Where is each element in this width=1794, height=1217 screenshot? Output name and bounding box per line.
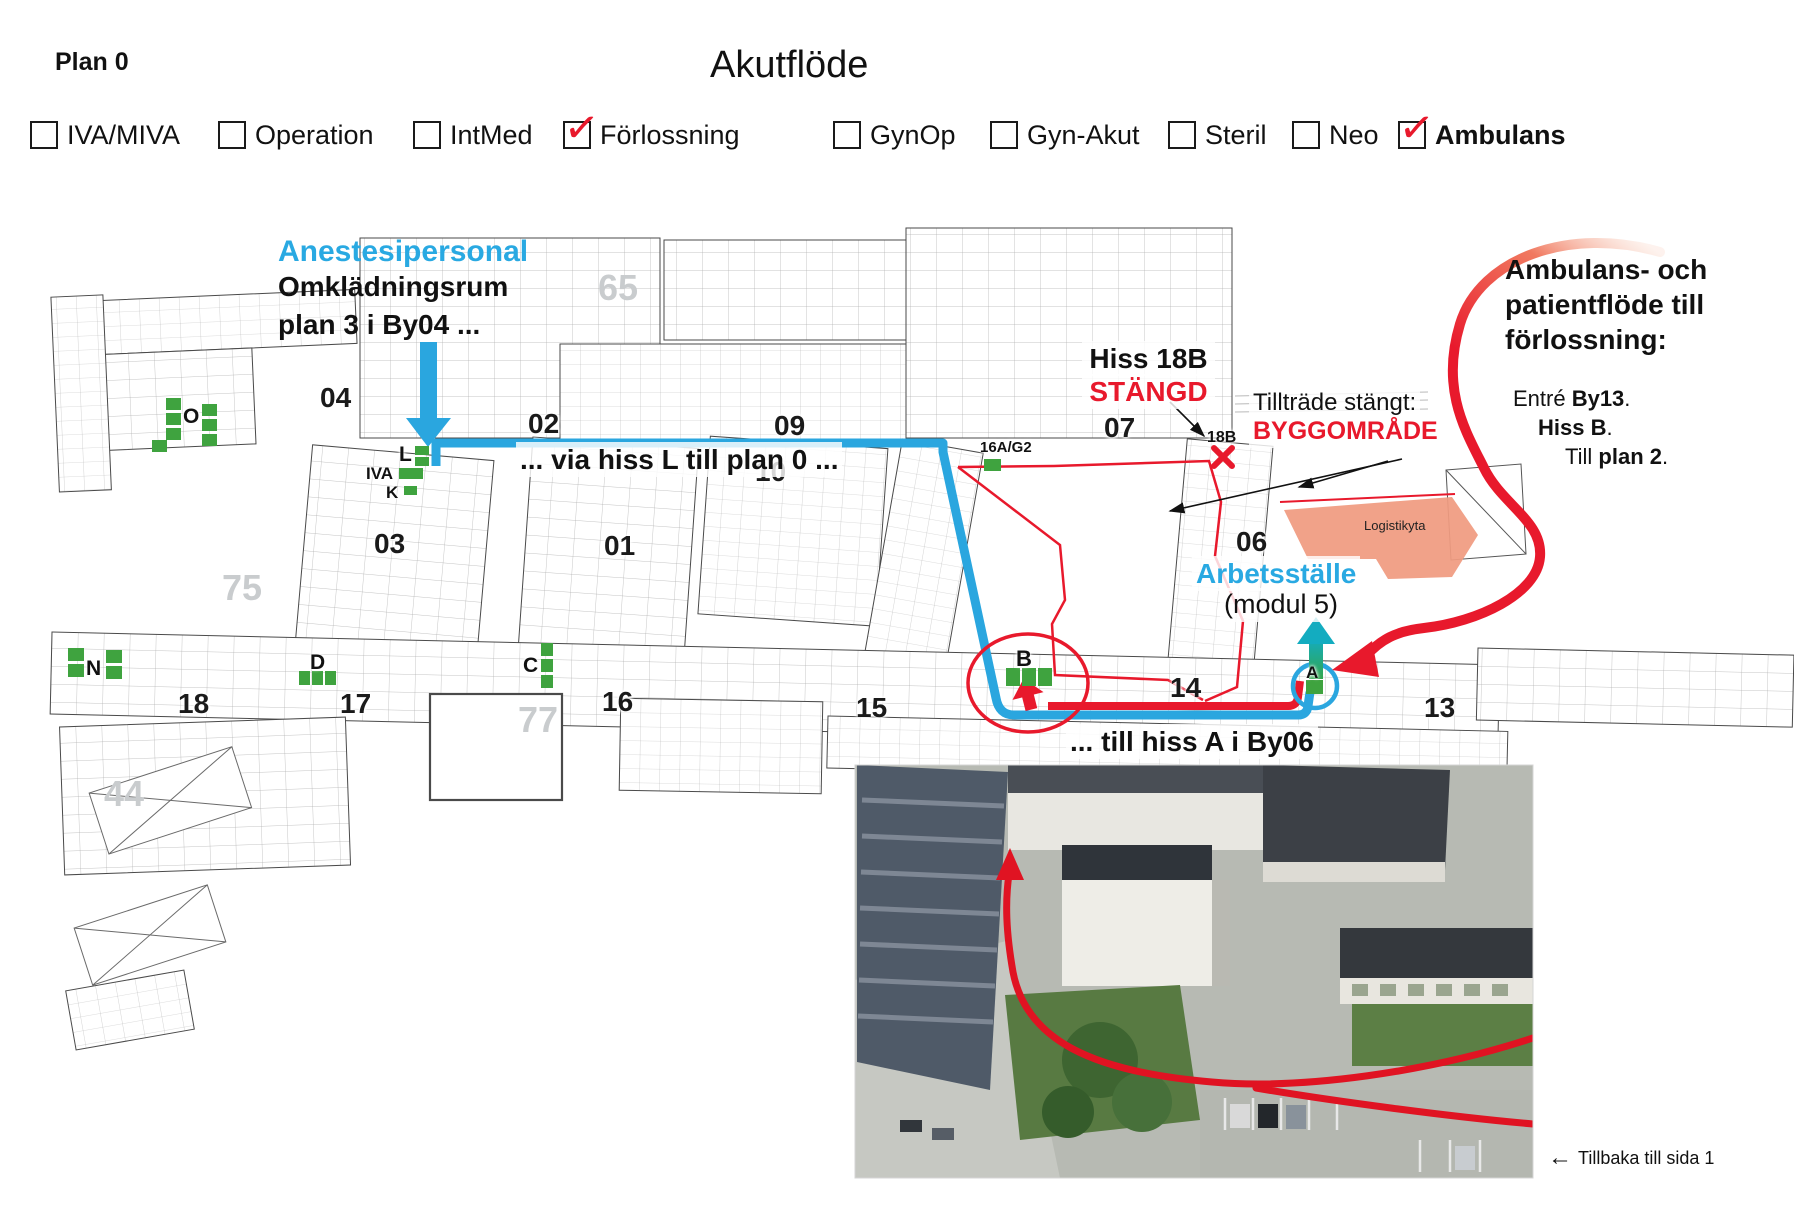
back-link-label: Tillbaka till sida 1 — [1578, 1148, 1714, 1169]
plan-level-label: Plan 0 — [55, 48, 129, 77]
entre-bold: By13 — [1572, 386, 1625, 411]
faint-number-65: 65 — [598, 270, 638, 306]
anestesi-line1: Omklädningsrum — [278, 270, 508, 303]
hiss-18b-note: Hiss 18B — [1082, 341, 1215, 376]
legend-label: Gyn-Akut — [1027, 120, 1140, 151]
photo-building-dark — [857, 765, 1008, 1090]
arbetsstalle-modul: (modul 5) — [1220, 588, 1342, 622]
marker-letter-b: B — [1016, 648, 1032, 670]
marker-letter-o: O — [183, 406, 199, 427]
checkbox-forlossning[interactable]: ✓ — [563, 121, 591, 149]
legend-item-iva-miva[interactable]: IVA/MIVA — [30, 120, 180, 150]
marker-iva-square — [399, 468, 423, 479]
via-hiss-l-note: ... via hiss L till plan 0 ... — [516, 442, 842, 477]
hiss-b-line: Hiss B. — [1538, 415, 1613, 441]
wing-number-03: 03 — [374, 530, 405, 558]
legend-item-operation[interactable]: Operation — [218, 120, 374, 150]
legend-label: IntMed — [450, 120, 533, 151]
entre-prefix: Entré — [1513, 386, 1572, 411]
byggomrade-note: BYGGOMRÅDE — [1249, 416, 1442, 448]
entre-suffix: . — [1624, 386, 1630, 411]
legend-item-gynop[interactable]: GynOp — [833, 120, 956, 150]
marker-letter-n: N — [86, 658, 101, 679]
wing-number-02: 02 — [528, 410, 559, 438]
wing-number-16: 16 — [602, 688, 633, 716]
check-icon: ✓ — [562, 105, 601, 150]
hiss-b-bold: Hiss B — [1538, 415, 1606, 440]
marker-c-squares — [541, 643, 553, 688]
anestesi-line2: plan 3 i By04 ... — [278, 308, 480, 341]
legend-item-neo[interactable]: Neo — [1292, 120, 1379, 150]
wing-number-13: 13 — [1424, 694, 1455, 722]
checkbox-neo[interactable] — [1292, 121, 1320, 149]
entre-line: Entré By13. — [1513, 386, 1630, 412]
legend-label: Neo — [1329, 120, 1379, 151]
marker-letter-a: A — [1306, 664, 1318, 681]
till-hiss-a-note: ... till hiss A i By06 — [1066, 724, 1318, 759]
label-16a-g2: 16A/G2 — [980, 440, 1032, 455]
legend-label: Ambulans — [1435, 120, 1566, 151]
ambulans-note-line2: patientflöde till — [1505, 287, 1704, 322]
checkbox-operation[interactable] — [218, 121, 246, 149]
marker-16ag2-square — [984, 459, 1001, 471]
wing-number-06: 06 — [1236, 528, 1267, 556]
wing-number-15: 15 — [856, 694, 887, 722]
wing-number-17: 17 — [340, 690, 371, 718]
checkbox-intmed[interactable] — [413, 121, 441, 149]
label-18b: 18B — [1207, 430, 1236, 446]
marker-letter-d: D — [310, 652, 325, 673]
checkbox-gyn-akut[interactable] — [990, 121, 1018, 149]
legend-item-forlossning[interactable]: ✓ Förlossning — [563, 120, 740, 150]
legend-label: Operation — [255, 120, 374, 151]
check-icon: ✓ — [1397, 105, 1436, 150]
wing-number-14: 14 — [1170, 674, 1201, 702]
page-title: Akutflöde — [710, 44, 868, 87]
left-arrow-icon: ← — [1548, 1146, 1572, 1170]
legend-item-steril[interactable]: Steril — [1168, 120, 1267, 150]
checkbox-iva-miva[interactable] — [30, 121, 58, 149]
checkbox-steril[interactable] — [1168, 121, 1196, 149]
slide: Plan 0 Akutflöde IVA/MIVA Operation IntM… — [0, 0, 1794, 1217]
legend-label: Förlossning — [600, 120, 740, 151]
aerial-photo — [855, 765, 1533, 1178]
hiss-b-suffix: . — [1606, 415, 1612, 440]
wing-number-07: 07 — [1104, 414, 1135, 442]
arbetsstalle-title: Arbetsställe — [1192, 556, 1360, 591]
marker-letter-iva: IVA — [366, 465, 393, 482]
wing-number-04: 04 — [320, 384, 351, 412]
legend-label: IVA/MIVA — [67, 120, 180, 151]
tilltrade-note: Tillträde stängt: — [1249, 388, 1420, 418]
checkbox-gynop[interactable] — [833, 121, 861, 149]
marker-letter-c: C — [523, 655, 538, 676]
wing-number-01: 01 — [604, 532, 635, 560]
till-plan-prefix: Till — [1565, 444, 1598, 469]
wing-number-09: 09 — [774, 412, 805, 440]
marker-letter-k: K — [386, 484, 398, 501]
till-plan-bold: plan 2 — [1598, 444, 1662, 469]
legend-item-ambulans[interactable]: ✓ Ambulans — [1398, 120, 1566, 150]
till-plan-suffix: . — [1662, 444, 1668, 469]
marker-a-square — [1306, 680, 1323, 694]
legend-item-intmed[interactable]: IntMed — [413, 120, 533, 150]
checkbox-ambulans[interactable]: ✓ — [1398, 121, 1426, 149]
label-logistikyta: Logistikyta — [1364, 518, 1425, 533]
faint-number-44: 44 — [104, 776, 144, 812]
ambulans-note-line1: Ambulans- och — [1505, 252, 1707, 287]
marker-letter-l: L — [399, 444, 412, 465]
legend-label: Steril — [1205, 120, 1267, 151]
wing-number-18: 18 — [178, 690, 209, 718]
hiss-18b-stangd: STÄNGD — [1082, 374, 1215, 409]
legend-item-gyn-akut[interactable]: Gyn-Akut — [990, 120, 1140, 150]
legend-label: GynOp — [870, 120, 956, 151]
anestesi-title: Anestesipersonal — [278, 234, 528, 269]
back-link[interactable]: ← Tillbaka till sida 1 — [1548, 1146, 1714, 1170]
faint-number-75: 75 — [222, 570, 262, 606]
marker-k-square — [404, 486, 417, 495]
floorplan-svg — [0, 0, 1794, 1217]
till-plan-line: Till plan 2. — [1565, 444, 1668, 470]
ambulans-note-line3: förlossning: — [1505, 322, 1667, 357]
faint-number-77: 77 — [518, 702, 558, 738]
